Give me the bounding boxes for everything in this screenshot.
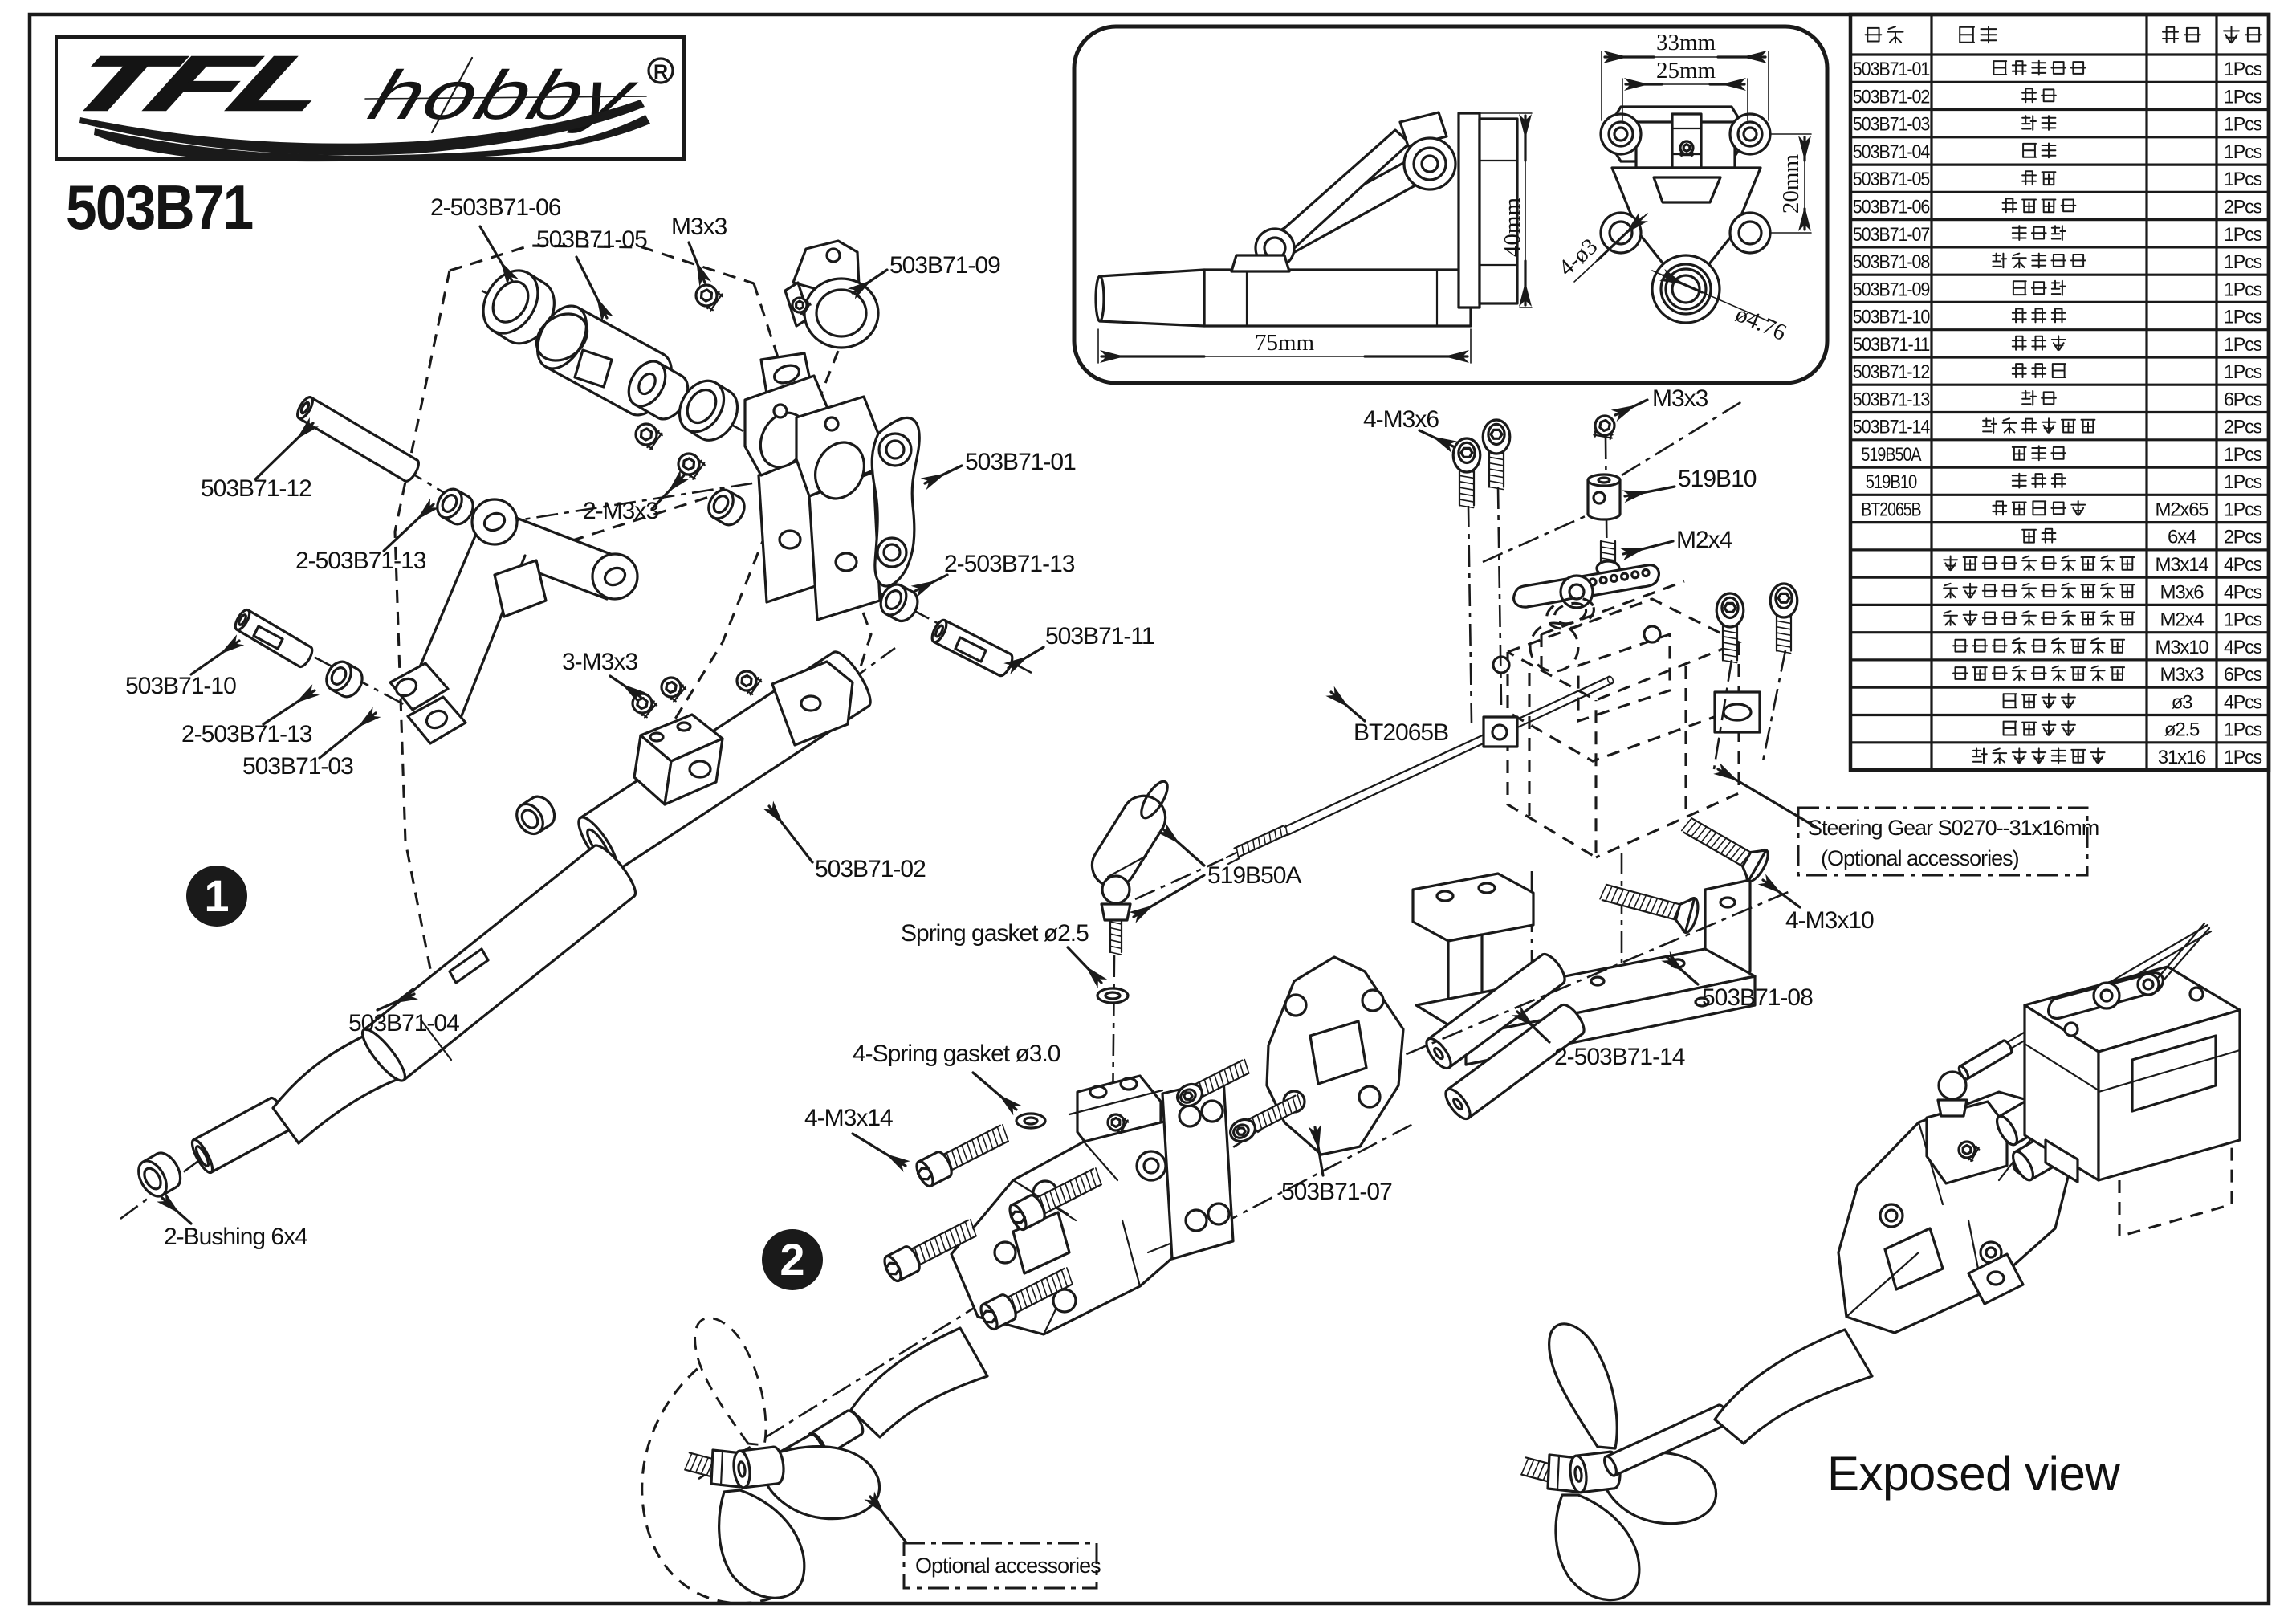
svg-text:40mm: 40mm bbox=[1500, 198, 1525, 258]
svg-text:503B71-08: 503B71-08 bbox=[1702, 984, 1813, 1011]
svg-text:4-M3x14: 4-M3x14 bbox=[804, 1105, 893, 1131]
svg-text:503B71-04: 503B71-04 bbox=[348, 1010, 459, 1037]
svg-text:1Pcs: 1Pcs bbox=[2224, 224, 2262, 246]
svg-text:503B71-11: 503B71-11 bbox=[1045, 623, 1154, 650]
svg-text:503B71-09: 503B71-09 bbox=[889, 252, 1000, 279]
svg-text:4-Spring gasket ø3.0: 4-Spring gasket ø3.0 bbox=[853, 1041, 1060, 1067]
svg-text:M3x10: M3x10 bbox=[2155, 637, 2208, 658]
svg-text:20mm: 20mm bbox=[1778, 154, 1804, 214]
svg-text:(Optional accessories): (Optional accessories) bbox=[1821, 846, 2019, 870]
svg-text:503B71-11: 503B71-11 bbox=[1853, 334, 1930, 356]
svg-text:Spring gasket ø2.5: Spring gasket ø2.5 bbox=[901, 920, 1089, 947]
svg-text:503B71-06: 503B71-06 bbox=[1853, 197, 1930, 218]
svg-text:6Pcs: 6Pcs bbox=[2224, 664, 2262, 686]
svg-text:R: R bbox=[653, 61, 668, 83]
svg-text:3-M3x3: 3-M3x3 bbox=[562, 649, 637, 675]
svg-text:503B71-14: 503B71-14 bbox=[1853, 417, 1930, 438]
svg-text:2Pcs: 2Pcs bbox=[2224, 197, 2262, 218]
svg-text:4Pcs: 4Pcs bbox=[2224, 691, 2262, 713]
svg-text:Optional accessories: Optional accessories bbox=[915, 1554, 1101, 1578]
svg-text:1Pcs: 1Pcs bbox=[2224, 609, 2262, 631]
svg-text:503B71-07: 503B71-07 bbox=[1853, 224, 1930, 246]
svg-text:75mm: 75mm bbox=[1255, 330, 1315, 356]
svg-text:503B71-01: 503B71-01 bbox=[1853, 59, 1930, 80]
svg-text:503B71-07: 503B71-07 bbox=[1281, 1179, 1392, 1205]
svg-text:4Pcs: 4Pcs bbox=[2224, 637, 2262, 658]
svg-text:1: 1 bbox=[204, 870, 229, 921]
svg-text:2-503B71-13: 2-503B71-13 bbox=[295, 548, 426, 574]
svg-text:M2x4: M2x4 bbox=[1676, 527, 1732, 553]
svg-text:503B71-02: 503B71-02 bbox=[1853, 86, 1930, 108]
svg-text:1Pcs: 1Pcs bbox=[2224, 444, 2262, 466]
svg-text:M3x3: M3x3 bbox=[2160, 664, 2204, 686]
svg-text:ø3: ø3 bbox=[2172, 691, 2192, 713]
svg-text:519B10: 519B10 bbox=[1678, 466, 1757, 492]
svg-text:519B50A: 519B50A bbox=[1861, 444, 1921, 466]
svg-text:M3x3: M3x3 bbox=[671, 214, 727, 240]
svg-text:M3x14: M3x14 bbox=[2155, 554, 2208, 576]
svg-text:1Pcs: 1Pcs bbox=[2224, 169, 2262, 190]
svg-text:2-M3x3: 2-M3x3 bbox=[583, 498, 658, 524]
svg-text:2-Bushing 6x4: 2-Bushing 6x4 bbox=[164, 1224, 307, 1250]
svg-text:503B71: 503B71 bbox=[66, 172, 252, 242]
svg-text:503B71-13: 503B71-13 bbox=[1853, 389, 1930, 410]
svg-text:503B71-02: 503B71-02 bbox=[815, 856, 926, 882]
svg-text:1Pcs: 1Pcs bbox=[2224, 361, 2262, 383]
svg-text:503B71-12: 503B71-12 bbox=[201, 475, 311, 502]
svg-text:4Pcs: 4Pcs bbox=[2224, 554, 2262, 576]
svg-text:2: 2 bbox=[780, 1234, 804, 1285]
svg-text:503B71-03: 503B71-03 bbox=[1853, 114, 1930, 136]
svg-text:BT2065B: BT2065B bbox=[1354, 719, 1448, 746]
svg-text:503B71-12: 503B71-12 bbox=[1853, 361, 1930, 383]
svg-text:31x16: 31x16 bbox=[2158, 747, 2206, 768]
svg-text:33mm: 33mm bbox=[1656, 30, 1716, 55]
svg-text:TFL: TFL bbox=[51, 40, 344, 127]
svg-text:503B71-01: 503B71-01 bbox=[965, 449, 1076, 475]
svg-text:2Pcs: 2Pcs bbox=[2224, 417, 2262, 438]
svg-text:hobby: hobby bbox=[360, 56, 648, 133]
svg-text:503B71-09: 503B71-09 bbox=[1853, 279, 1930, 300]
svg-text:25mm: 25mm bbox=[1656, 58, 1716, 83]
svg-text:519B10: 519B10 bbox=[1866, 471, 1917, 493]
svg-text:4Pcs: 4Pcs bbox=[2224, 581, 2262, 603]
svg-text:503B71-05: 503B71-05 bbox=[536, 226, 647, 253]
svg-text:1Pcs: 1Pcs bbox=[2224, 251, 2262, 273]
svg-text:1Pcs: 1Pcs bbox=[2224, 114, 2262, 136]
svg-text:Exposed view: Exposed view bbox=[1827, 1447, 2120, 1501]
svg-text:519B50A: 519B50A bbox=[1207, 862, 1301, 889]
svg-text:M3x6: M3x6 bbox=[2160, 581, 2204, 603]
svg-text:503B71-04: 503B71-04 bbox=[1853, 141, 1930, 163]
svg-text:1Pcs: 1Pcs bbox=[2224, 719, 2262, 741]
svg-text:503B71-10: 503B71-10 bbox=[125, 673, 236, 699]
svg-text:503B71-05: 503B71-05 bbox=[1853, 169, 1930, 190]
svg-text:1Pcs: 1Pcs bbox=[2224, 86, 2262, 108]
svg-text:2-503B71-13: 2-503B71-13 bbox=[944, 551, 1075, 577]
svg-text:4-M3x6: 4-M3x6 bbox=[1363, 406, 1439, 433]
svg-text:6x4: 6x4 bbox=[2168, 527, 2196, 548]
svg-text:503B71-08: 503B71-08 bbox=[1853, 251, 1930, 273]
svg-text:1Pcs: 1Pcs bbox=[2224, 59, 2262, 80]
svg-text:1Pcs: 1Pcs bbox=[2224, 334, 2262, 356]
svg-text:BT2065B: BT2065B bbox=[1861, 499, 1920, 521]
svg-text:Steering Gear S0270--31x16mm: Steering Gear S0270--31x16mm bbox=[1808, 816, 2099, 840]
svg-text:1Pcs: 1Pcs bbox=[2224, 499, 2262, 521]
svg-text:2Pcs: 2Pcs bbox=[2224, 527, 2262, 548]
svg-text:1Pcs: 1Pcs bbox=[2224, 307, 2262, 328]
svg-text:1Pcs: 1Pcs bbox=[2224, 141, 2262, 163]
svg-text:M3x3: M3x3 bbox=[1652, 385, 1708, 412]
svg-text:2-503B71-06: 2-503B71-06 bbox=[430, 194, 561, 221]
svg-text:6Pcs: 6Pcs bbox=[2224, 389, 2262, 410]
svg-text:1Pcs: 1Pcs bbox=[2224, 471, 2262, 493]
svg-text:2-503B71-14: 2-503B71-14 bbox=[1554, 1044, 1685, 1070]
svg-text:1Pcs: 1Pcs bbox=[2224, 747, 2262, 768]
svg-text:M2x65: M2x65 bbox=[2155, 499, 2208, 521]
svg-text:2-503B71-13: 2-503B71-13 bbox=[181, 721, 312, 747]
svg-text:4-M3x10: 4-M3x10 bbox=[1785, 907, 1874, 934]
svg-text:1Pcs: 1Pcs bbox=[2224, 279, 2262, 300]
svg-text:M2x4: M2x4 bbox=[2160, 609, 2204, 631]
svg-text:503B71-03: 503B71-03 bbox=[242, 753, 353, 780]
svg-text:503B71-10: 503B71-10 bbox=[1853, 307, 1930, 328]
svg-text:ø2.5: ø2.5 bbox=[2164, 719, 2200, 741]
